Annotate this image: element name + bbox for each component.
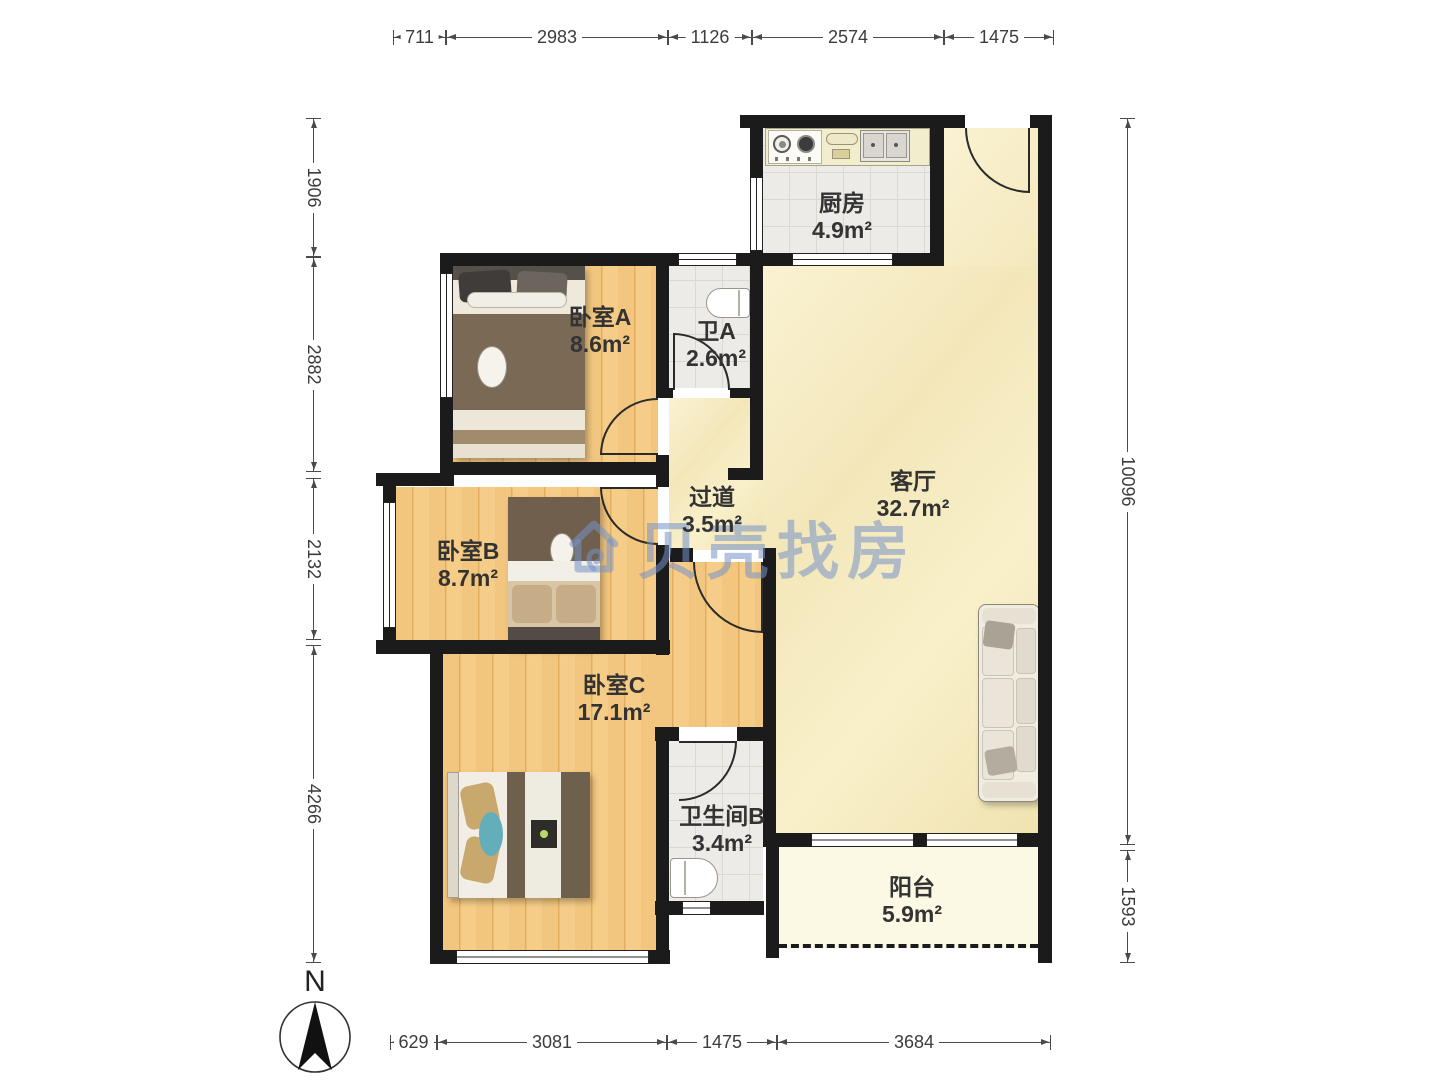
room-area: 3.5m² xyxy=(682,511,742,538)
kitchen-appliance xyxy=(832,149,850,159)
sofa-pillow xyxy=(982,620,1015,650)
sink-drain xyxy=(894,143,898,147)
room-label-kitchen: 厨房4.9m² xyxy=(812,190,872,244)
north-label: N xyxy=(277,966,353,998)
wall xyxy=(430,640,443,964)
wall xyxy=(728,468,752,480)
kitchen-sliding-door xyxy=(792,253,893,266)
window-bathroom-b xyxy=(682,901,711,915)
toilet-b xyxy=(670,858,718,898)
wall xyxy=(440,398,453,475)
room-label-bedroom-b: 卧室B8.7m² xyxy=(437,538,500,592)
dimension-1475: 1475 xyxy=(667,1032,777,1054)
dimension-2574: 2574 xyxy=(752,27,944,49)
stove-burner xyxy=(797,135,815,153)
dimension-4266: 4266 xyxy=(302,645,324,963)
sofa-seat xyxy=(982,678,1014,728)
sofa-cushion xyxy=(982,782,1036,798)
room-area: 5.9m² xyxy=(882,901,942,928)
wall xyxy=(376,640,670,654)
room-area: 17.1m² xyxy=(578,699,651,726)
wall xyxy=(750,251,763,480)
sofa-back-cushion xyxy=(1016,628,1036,674)
north-arrow-icon xyxy=(277,998,353,1076)
wall xyxy=(737,253,750,266)
wall xyxy=(656,388,673,398)
window-bedroom-a xyxy=(440,273,453,398)
bed-a-foot xyxy=(453,444,585,458)
room-area: 8.6m² xyxy=(569,331,632,358)
room-name: 卧室B xyxy=(437,538,500,565)
bed-c-cushion xyxy=(479,812,503,856)
stove-knobs xyxy=(775,157,819,161)
wall xyxy=(440,253,453,273)
dimension-1126: 1126 xyxy=(668,27,752,49)
dimension-1593: 1593 xyxy=(1116,850,1138,963)
room-label-bedroom-a: 卧室A8.6m² xyxy=(569,304,632,358)
dimension-2882: 2882 xyxy=(302,257,324,472)
wall xyxy=(656,253,669,388)
wall xyxy=(763,548,776,847)
room-name: 卫A xyxy=(686,318,746,345)
window-bathroom-a xyxy=(678,253,737,266)
room-area: 4.9m² xyxy=(812,217,872,244)
wall xyxy=(737,727,764,741)
window-bedroom-b-bay xyxy=(383,502,396,628)
compass-north: N xyxy=(277,966,353,1080)
sofa-back-cushion xyxy=(1016,678,1036,724)
balcony-sliding-door xyxy=(926,833,1018,847)
bed-a-blanket xyxy=(453,314,585,410)
room-name: 卧室C xyxy=(578,672,651,699)
room-label-hallway: 过道3.5m² xyxy=(682,484,742,538)
wall xyxy=(656,455,669,487)
sofa-pillow xyxy=(984,746,1018,777)
kitchen-hood xyxy=(826,133,858,145)
bed-a-cushion xyxy=(477,346,507,388)
wall xyxy=(711,901,764,915)
room-name: 卧室A xyxy=(569,304,632,331)
beike-logo-watermark xyxy=(567,517,621,575)
wall xyxy=(930,115,944,266)
dimension-3081: 3081 xyxy=(437,1032,667,1054)
bed-a-band xyxy=(453,410,585,430)
window-kitchen xyxy=(750,177,763,251)
room-label-bedroom-c: 卧室C17.1m² xyxy=(578,672,651,726)
dimension-1475: 1475 xyxy=(944,27,1054,49)
window-bedroom-c xyxy=(456,950,649,964)
dimension-2132: 2132 xyxy=(302,478,324,640)
watermark-text: 贝壳找房 xyxy=(637,501,917,591)
wall xyxy=(440,253,678,266)
dimension-10096: 10096 xyxy=(1116,118,1138,845)
bed-c-headboard xyxy=(447,772,459,898)
room-label-balcony: 阳台5.9m² xyxy=(882,874,942,928)
room-label-living-room: 客厅32.7m² xyxy=(877,468,950,522)
bed-a-bolster xyxy=(467,292,567,308)
wall xyxy=(1038,115,1052,963)
wall xyxy=(750,115,763,177)
bed-b-pillow xyxy=(512,585,552,623)
dimension-1906: 1906 xyxy=(302,118,324,257)
floorplan-page: { "watermark": { "text": "贝壳找房" }, "comp… xyxy=(0,0,1440,1080)
wall xyxy=(914,833,926,847)
wall xyxy=(656,727,669,964)
sofa-back-cushion xyxy=(1016,726,1036,772)
dimension-629: 629 xyxy=(390,1032,437,1054)
stove-burner-dot xyxy=(779,141,786,148)
room-label-bathroom-a: 卫A2.6m² xyxy=(686,318,746,372)
toilet-a-tank-line xyxy=(738,290,740,316)
sink-drain xyxy=(871,143,875,147)
room-area: 2.6m² xyxy=(686,345,746,372)
room-label-bathroom-b: 卫生间B3.4m² xyxy=(679,803,765,857)
room-area: 3.4m² xyxy=(679,830,765,857)
dimension-2983: 2983 xyxy=(446,27,668,49)
bed-a-band xyxy=(453,430,585,444)
balcony-sliding-door xyxy=(811,833,914,847)
room-name: 厨房 xyxy=(812,190,872,217)
toilet-b-tank-line xyxy=(684,861,686,895)
wall xyxy=(383,473,396,502)
room-name: 过道 xyxy=(682,484,742,511)
wall xyxy=(440,462,660,475)
toilet-a xyxy=(706,288,750,318)
bed-c-tray-dot xyxy=(540,830,548,838)
wall xyxy=(766,847,779,958)
room-name: 卫生间B xyxy=(679,803,765,830)
room-area: 8.7m² xyxy=(437,565,500,592)
dimension-711: 711 xyxy=(393,27,446,49)
balcony-railing xyxy=(779,944,1038,948)
room-name: 客厅 xyxy=(877,468,950,495)
room-name: 阳台 xyxy=(882,874,942,901)
dimension-3684: 3684 xyxy=(777,1032,1051,1054)
room-area: 32.7m² xyxy=(877,495,950,522)
wall xyxy=(383,628,396,654)
